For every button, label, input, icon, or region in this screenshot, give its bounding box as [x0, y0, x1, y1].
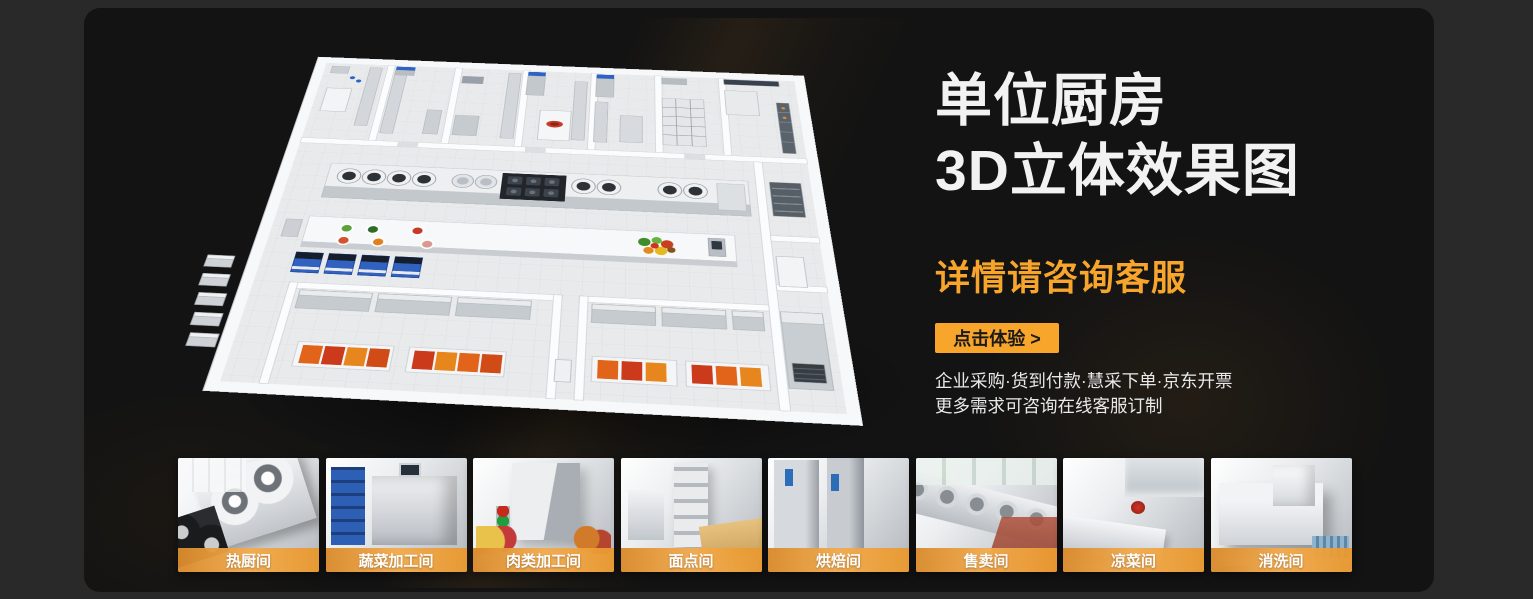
thumbnail-vegetable-processing[interactable]: 蔬菜加工间 — [326, 458, 467, 572]
thumbnail-label: 热厨间 — [178, 548, 319, 572]
thumb-art-shape — [399, 463, 422, 478]
thumb-art-shape — [628, 490, 665, 540]
thumbnail-label: 烘焙间 — [768, 548, 909, 572]
thumbnail-label: 消洗间 — [1211, 548, 1352, 572]
banner-panel: 单位厨房 3D立体效果图 详情请咨询客服 点击体验 > 企业采购·货到付款·慧采… — [84, 8, 1434, 592]
thumbnail-label: 蔬菜加工间 — [326, 548, 467, 572]
thumbnail-hot-kitchen[interactable]: 热厨间 — [178, 458, 319, 572]
thumbnail-cold-dish-room[interactable]: 凉菜间 — [1063, 458, 1204, 572]
thumbnail-label: 面点间 — [621, 548, 762, 572]
feature-line-2: 更多需求可咨询在线客服订制 — [935, 394, 1415, 419]
thumb-art-shape — [916, 458, 1057, 485]
thumbnail-baking-room[interactable]: 烘焙间 — [768, 458, 909, 572]
thumb-art-shape — [496, 506, 510, 527]
hero-title-line1: 单位厨房 — [935, 66, 1415, 136]
room-thumbnails: 热厨间 蔬菜加工间 肉类加工间 面点间 烘焙间 售卖间 — [178, 458, 1352, 572]
promo-banner: 单位厨房 3D立体效果图 详情请咨询客服 点击体验 > 企业采购·货到付款·慧采… — [0, 0, 1533, 599]
thumbnail-meat-processing[interactable]: 肉类加工间 — [473, 458, 614, 572]
hero-title: 单位厨房 3D立体效果图 — [935, 66, 1415, 206]
thumb-art-shape — [178, 458, 246, 492]
floorplan-graphic — [152, 55, 863, 426]
thumbnail-label: 售卖间 — [916, 548, 1057, 572]
thumb-art-shape — [785, 469, 793, 486]
kitchen-3d-floorplan — [152, 55, 863, 426]
thumb-art-shape — [1125, 458, 1204, 497]
feature-lines: 企业采购·货到付款·慧采下单·京东开票 更多需求可咨询在线客服订制 — [935, 369, 1415, 419]
cta-button[interactable]: 点击体验 > — [935, 323, 1059, 353]
thumbnail-washing-room[interactable]: 消洗间 — [1211, 458, 1352, 572]
hero-title-line2: 3D立体效果图 — [935, 136, 1415, 206]
thumbnail-pastry-room[interactable]: 面点间 — [621, 458, 762, 572]
thumb-art-shape — [331, 467, 365, 545]
thumb-art-shape — [372, 476, 457, 544]
thumb-art-shape — [1273, 465, 1315, 506]
thumbnail-label: 凉菜间 — [1063, 548, 1204, 572]
hero-copy: 单位厨房 3D立体效果图 详情请咨询客服 点击体验 > 企业采购·货到付款·慧采… — [935, 66, 1415, 419]
thumb-art-shape — [1131, 501, 1145, 514]
thumbnail-label: 肉类加工间 — [473, 548, 614, 572]
feature-line-1: 企业采购·货到付款·慧采下单·京东开票 — [935, 369, 1415, 394]
thumbnail-sales-room[interactable]: 售卖间 — [916, 458, 1057, 572]
hero-subtitle: 详情请咨询客服 — [935, 250, 1415, 301]
